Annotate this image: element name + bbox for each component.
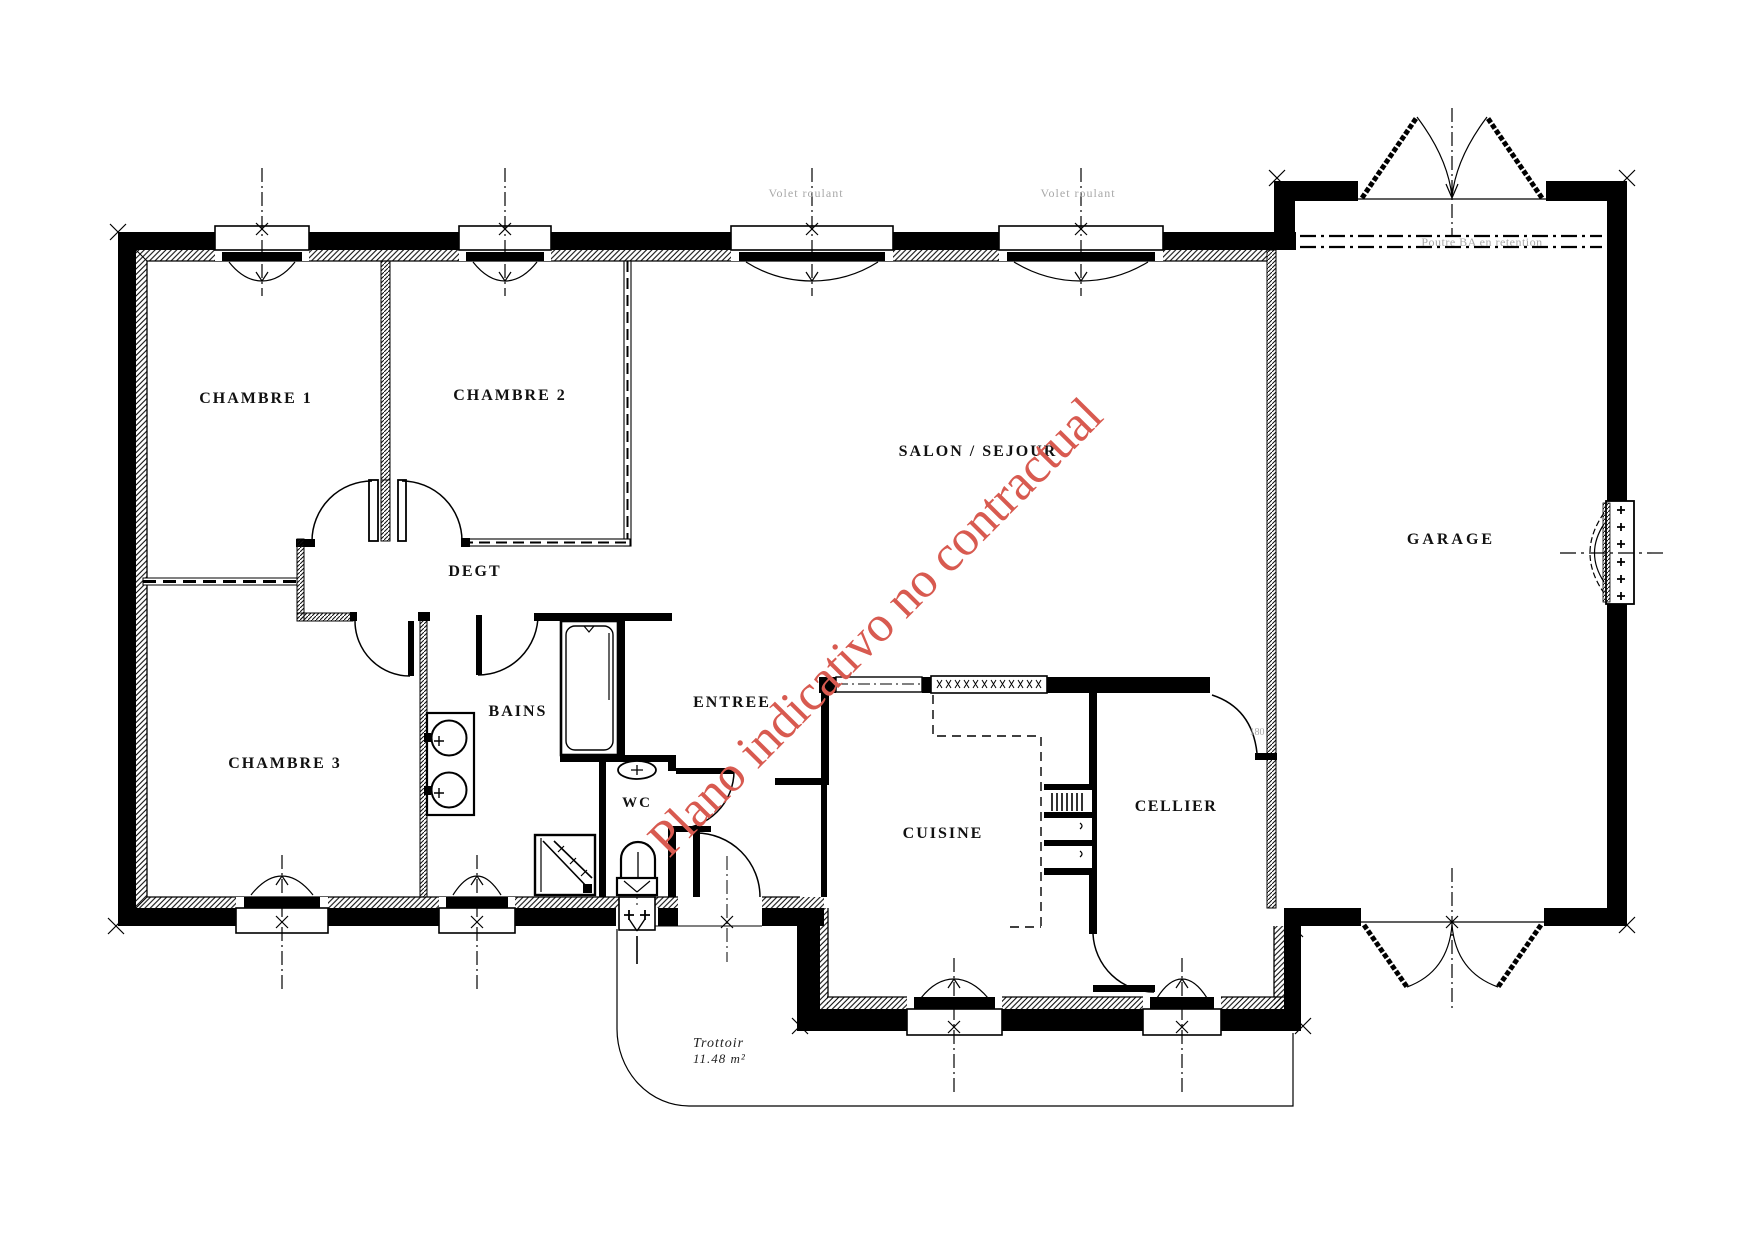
- svg-text:11.48 m²: 11.48 m²: [693, 1051, 746, 1066]
- svg-text:BAINS: BAINS: [489, 703, 548, 720]
- svg-text:Poutre BA en retention: Poutre BA en retention: [1421, 235, 1542, 249]
- svg-text:Trottoir: Trottoir: [693, 1036, 744, 1051]
- svg-text:CHAMBRE 2: CHAMBRE 2: [453, 387, 567, 404]
- svg-text:DEGT: DEGT: [448, 563, 501, 580]
- svg-text:Volet roulant: Volet roulant: [768, 186, 843, 200]
- svg-text:Volet roulant: Volet roulant: [1040, 186, 1115, 200]
- svg-text:WC: WC: [622, 795, 652, 811]
- svg-text:CHAMBRE 3: CHAMBRE 3: [228, 755, 342, 772]
- svg-text:CUISINE: CUISINE: [903, 825, 984, 842]
- svg-text:GARAGE: GARAGE: [1407, 531, 1495, 548]
- svg-text:CHAMBRE 1: CHAMBRE 1: [199, 390, 313, 407]
- svg-text:CELLIER: CELLIER: [1135, 798, 1218, 815]
- svg-text:180: 180: [1250, 727, 1265, 738]
